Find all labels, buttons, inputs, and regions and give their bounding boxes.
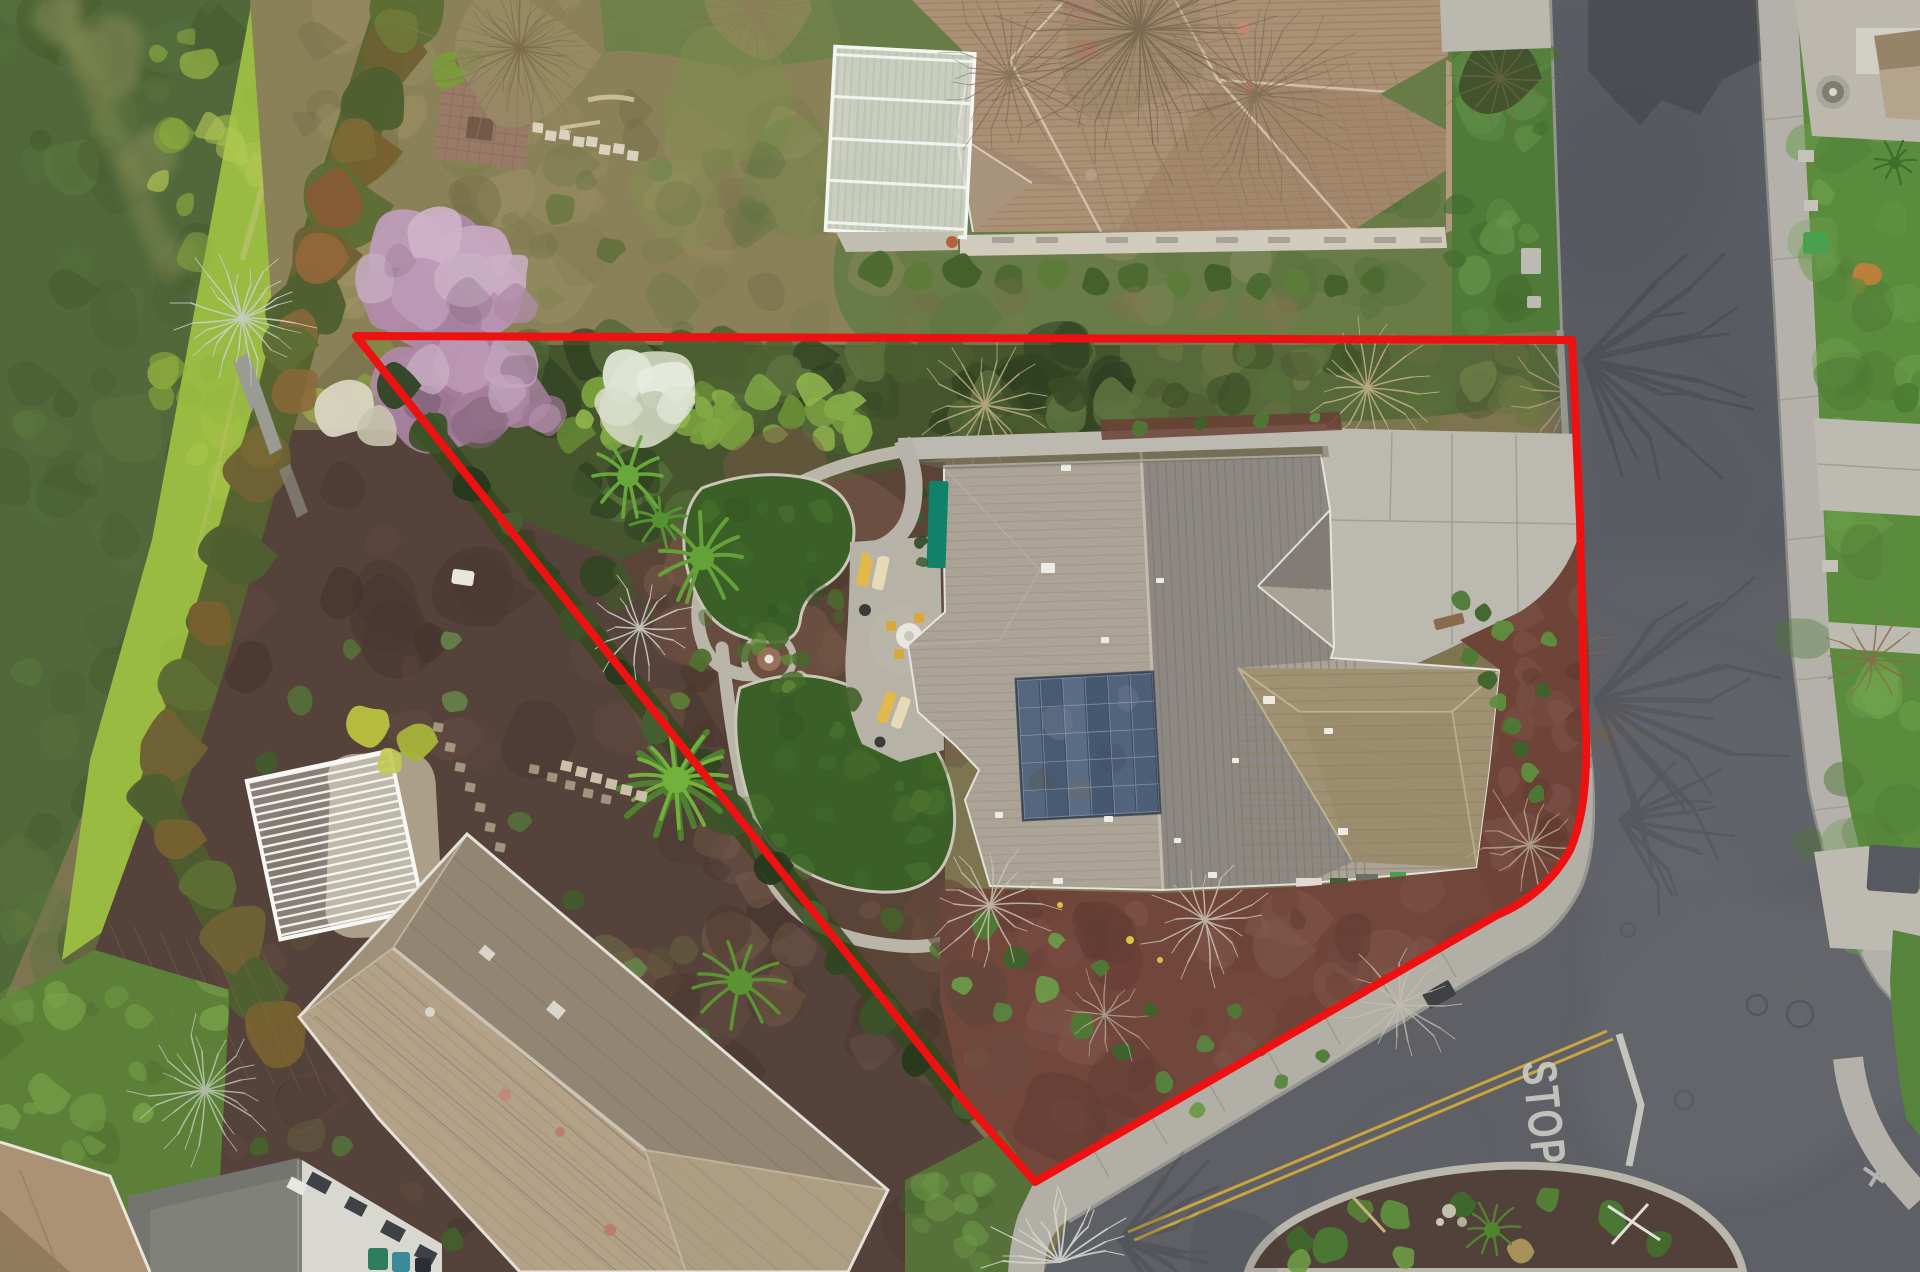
svg-text:STOP: STOP: [1511, 1058, 1576, 1168]
